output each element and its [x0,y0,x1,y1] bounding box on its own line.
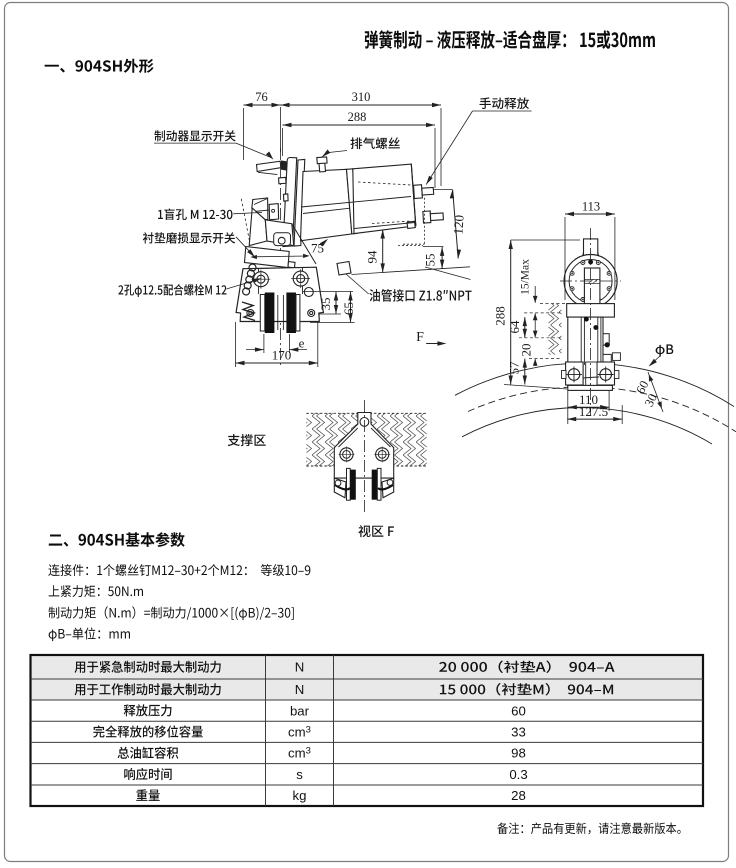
svg-text:57: 57 [507,361,522,375]
svg-text:15/Max: 15/Max [519,259,531,295]
svg-text:35: 35 [318,298,333,311]
svg-text:N: N [295,682,305,697]
svg-text:55: 55 [423,254,438,267]
svg-text:127.5: 127.5 [579,404,608,419]
svg-text:kg: kg [293,788,307,803]
svg-text:98: 98 [511,746,526,761]
svg-text:F: F [416,330,424,345]
svg-text:65: 65 [341,302,356,315]
svg-text:20: 20 [518,344,533,357]
svg-text:60: 60 [511,703,526,718]
svg-text:170: 170 [272,348,292,363]
svg-text:e: e [299,336,305,351]
svg-text:28: 28 [511,788,526,803]
svg-text:113: 113 [582,200,600,214]
svg-text:s: s [296,767,303,782]
svg-text:288: 288 [493,306,508,326]
svg-text:120: 120 [450,214,466,234]
svg-text:75: 75 [311,241,324,256]
svg-text:76: 76 [255,90,268,104]
svg-text:94: 94 [364,250,379,264]
svg-text:bar: bar [290,703,310,718]
svg-text:0.3: 0.3 [509,767,527,782]
svg-text:64: 64 [507,320,522,334]
svg-text:N: N [295,660,305,675]
svg-text:310: 310 [352,90,371,104]
svg-text:288: 288 [348,110,367,124]
svg-text:33: 33 [511,725,526,740]
